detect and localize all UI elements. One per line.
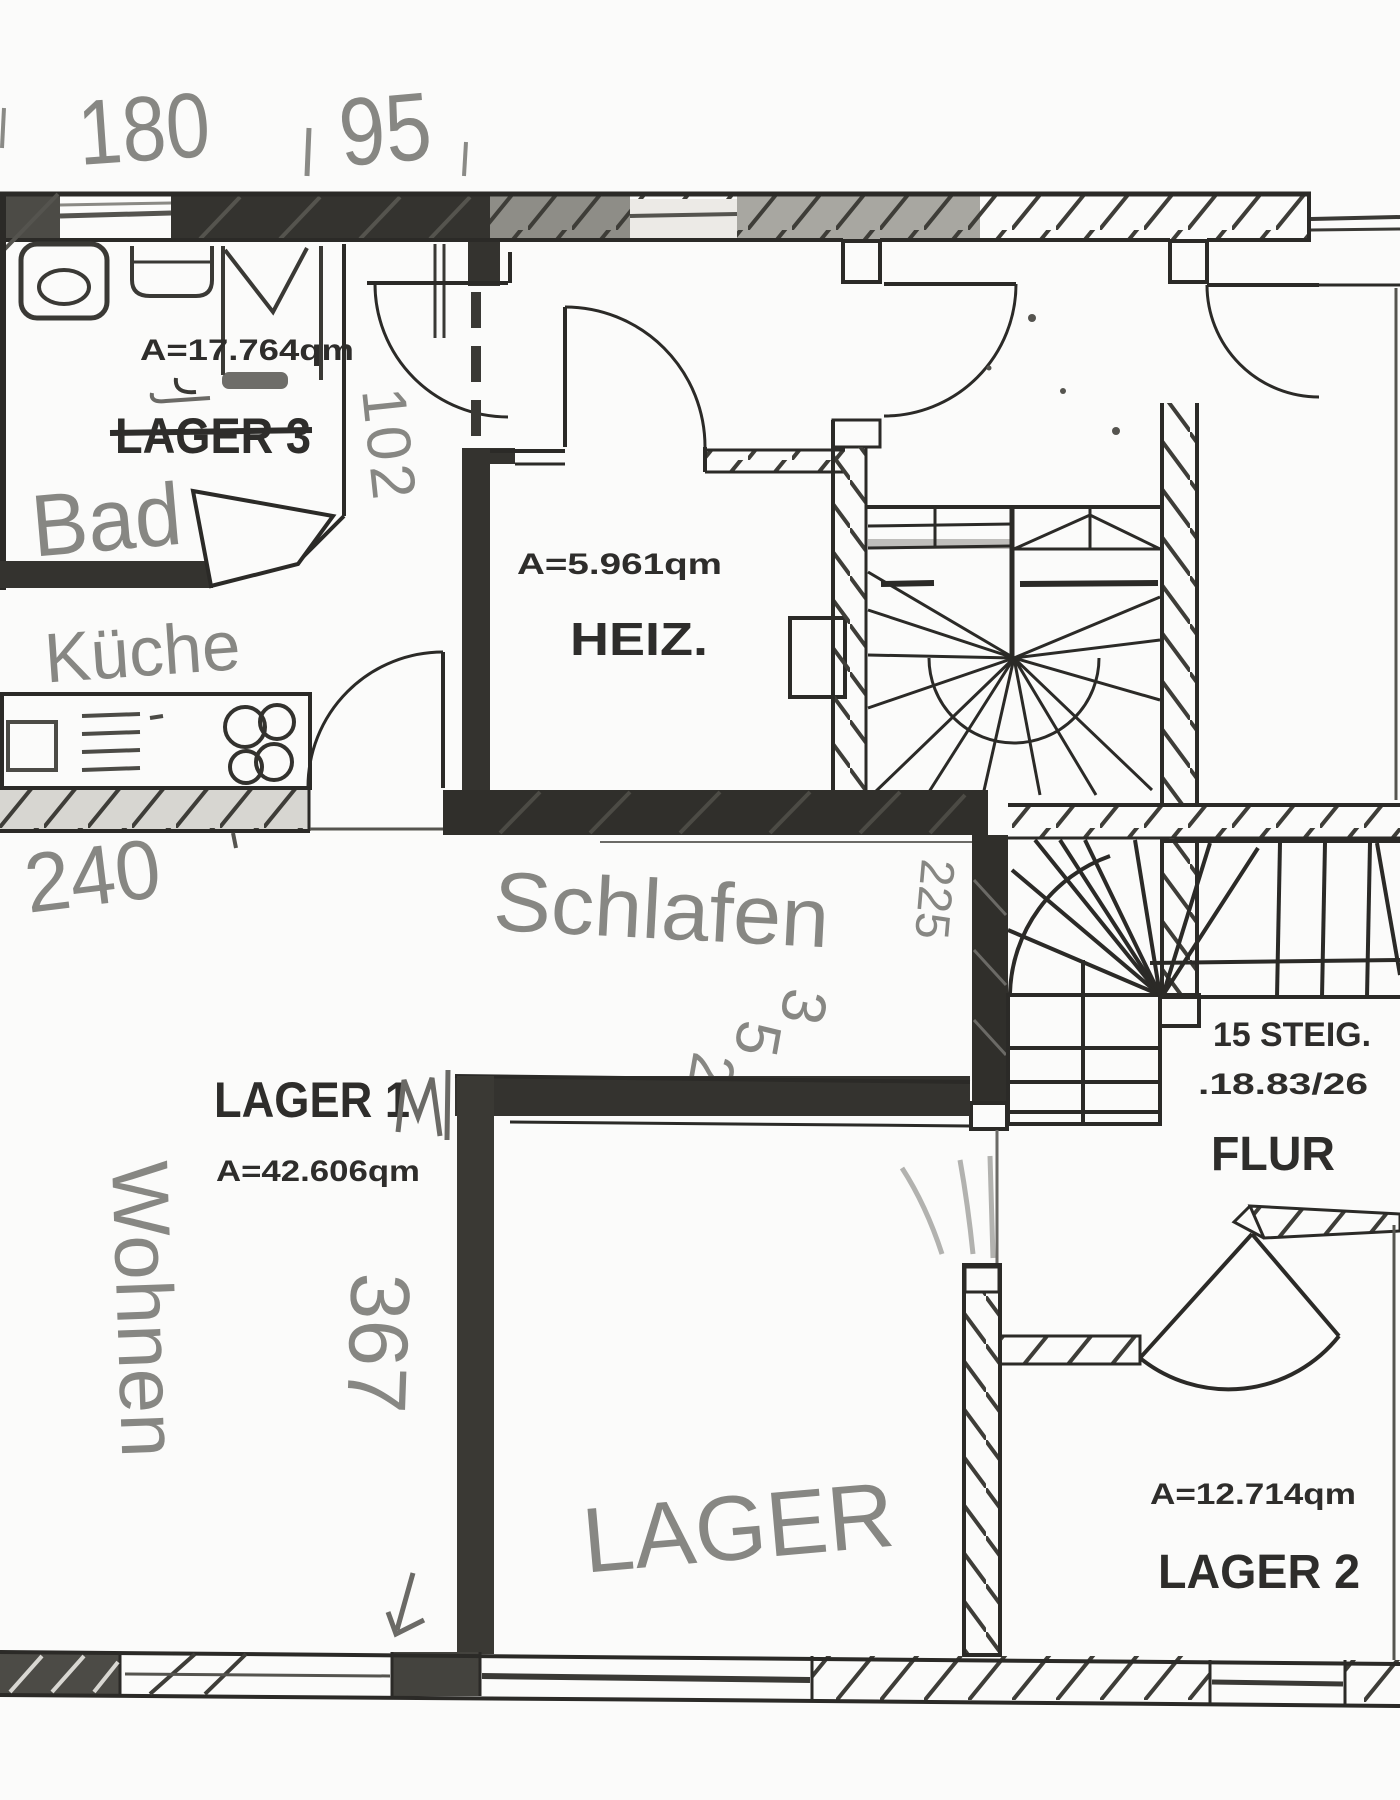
svg-text:Bad: Bad bbox=[27, 464, 185, 576]
svg-text:.18.83/26: .18.83/26 bbox=[1198, 1068, 1368, 1101]
svg-text:Küche: Küche bbox=[42, 606, 243, 697]
svg-text:240: 240 bbox=[19, 821, 165, 931]
svg-text:A=12.714qm: A=12.714qm bbox=[1150, 1478, 1356, 1511]
svg-text:180: 180 bbox=[74, 74, 213, 185]
svg-text:HEIZ.: HEIZ. bbox=[570, 613, 708, 665]
svg-text:102: 102 bbox=[348, 384, 429, 506]
svg-text:Schlafen: Schlafen bbox=[491, 854, 831, 965]
svg-text:15 STEIG.: 15 STEIG. bbox=[1213, 1016, 1371, 1054]
svg-text:LAGER 2: LAGER 2 bbox=[1158, 1546, 1360, 1599]
svg-text:367: 367 bbox=[329, 1271, 428, 1414]
svg-text:LAGER 3: LAGER 3 bbox=[115, 408, 311, 464]
svg-text:Wohnen: Wohnen bbox=[95, 1159, 194, 1458]
svg-text:A=5.961qm: A=5.961qm bbox=[517, 548, 722, 581]
svg-text:A=42.606qm: A=42.606qm bbox=[216, 1155, 420, 1188]
svg-text:225: 225 bbox=[904, 857, 964, 941]
svg-text:FLUR: FLUR bbox=[1211, 1128, 1335, 1181]
svg-text:A=17.764qm: A=17.764qm bbox=[140, 334, 354, 367]
svg-text:LAGER 1: LAGER 1 bbox=[214, 1072, 410, 1128]
svg-text:95: 95 bbox=[335, 72, 436, 187]
